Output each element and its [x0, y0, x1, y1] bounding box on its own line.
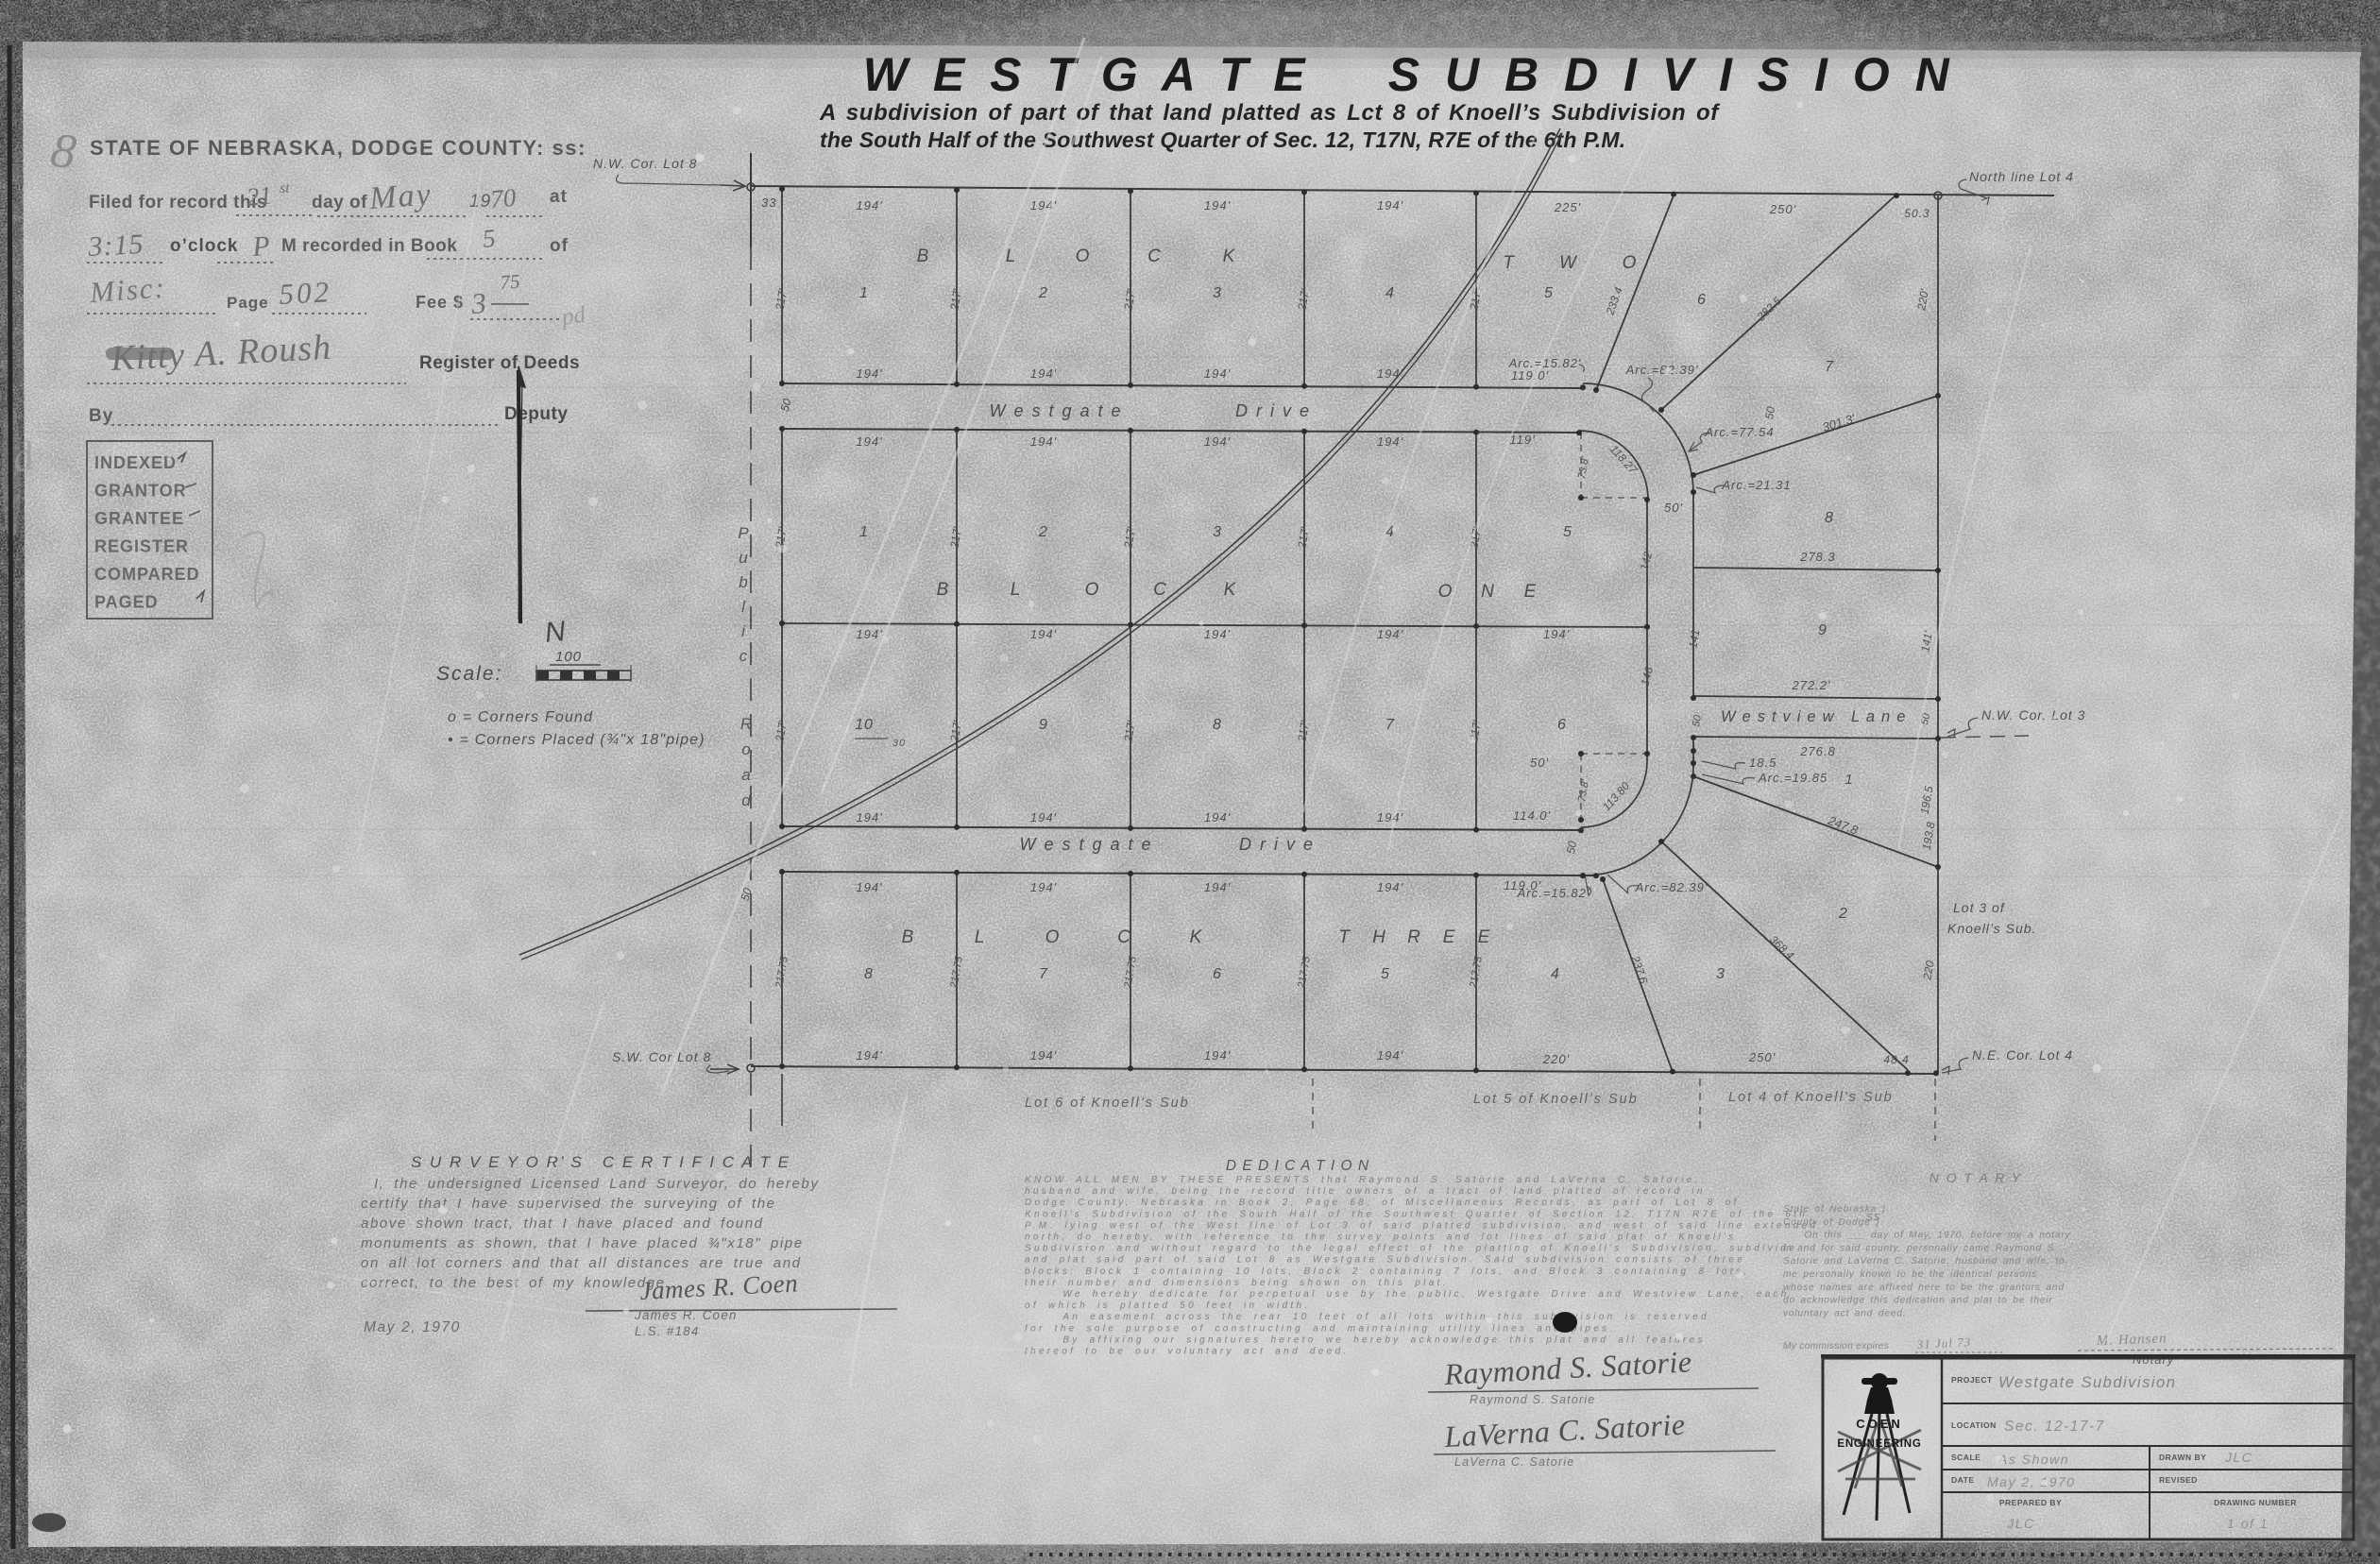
svg-text:O: O: [1045, 927, 1060, 947]
svg-text:Arc.=82.39': Arc.=82.39': [1625, 363, 1699, 377]
svg-text:E: E: [1443, 927, 1455, 947]
svg-text:a: a: [741, 766, 750, 784]
svg-text:for the sole purpose of constr: for the sole purpose of constructing and…: [1025, 1323, 1616, 1334]
svg-text:119.0': 119.0': [1511, 368, 1549, 382]
svg-text:194': 194': [1377, 434, 1403, 449]
svg-text:E: E: [1524, 582, 1537, 602]
svg-text:194': 194': [1030, 627, 1057, 641]
svg-text:Subdivision and without regard: Subdivision and without regard to the le…: [1025, 1244, 1797, 1254]
svg-text:114.0': 114.0': [1513, 808, 1551, 823]
svg-text:W E S T G A T E S U B D I V: W E S T G A T E S U B D I V I S I O N: [863, 48, 1955, 101]
svg-text:blocks: Block 1 containing 10: blocks: Block 1 containing 10 lots, Bloc…: [1025, 1266, 1749, 1277]
svg-text:50': 50': [1664, 501, 1683, 515]
svg-text:D r i v e: D r i v e: [1239, 835, 1315, 854]
svg-text:May 2, 1970: May 2, 1970: [1987, 1474, 2076, 1489]
svg-text:in and for said county, person: in and for said county, personally came …: [1783, 1243, 2058, 1253]
svg-text:8: 8: [1213, 717, 1222, 733]
svg-text:Sec. 12-17-7: Sec. 12-17-7: [2004, 1419, 2105, 1435]
svg-text:L: L: [975, 927, 985, 947]
svg-text:W: W: [1559, 253, 1578, 273]
svg-text:thereof to be our voluntary ac: thereof to be our voluntary act and deed…: [1025, 1347, 1349, 1357]
svg-text:6: 6: [1557, 717, 1567, 733]
svg-text:st: st: [280, 180, 290, 196]
svg-text:James R. Coen: James R. Coen: [634, 1308, 738, 1322]
svg-text:194': 194': [1030, 434, 1057, 449]
svg-text:O: O: [1623, 253, 1637, 273]
svg-text:N: N: [543, 616, 567, 649]
svg-text:50: 50: [1762, 405, 1777, 420]
svg-text:Arc.=77.54: Arc.=77.54: [1704, 425, 1774, 439]
svg-text:b: b: [739, 573, 747, 591]
svg-text:3: 3: [1213, 524, 1222, 540]
svg-text:monuments as shown, that I hav: monuments as shown, that I have placed ¾…: [361, 1235, 804, 1251]
svg-text:R: R: [740, 715, 752, 733]
svg-text:194': 194': [1377, 880, 1403, 894]
svg-text:N: N: [1481, 582, 1494, 602]
svg-text:3: 3: [1716, 966, 1725, 982]
svg-text:272.2': 272.2': [1791, 678, 1830, 692]
svg-text:7: 7: [1039, 966, 1048, 982]
svg-text:194': 194': [1204, 198, 1231, 212]
svg-text:50.3: 50.3: [1904, 207, 1929, 220]
svg-text:19: 19: [469, 192, 491, 212]
svg-text:Lot 3 of: Lot 3 of: [1953, 900, 2006, 915]
svg-text:D E D I C A T I O N: D E D I C A T I O N: [1226, 1158, 1369, 1174]
svg-text:DRAWN BY: DRAWN BY: [2159, 1453, 2206, 1462]
svg-text:LaVerna C. Satorie: LaVerna C. Satorie: [1454, 1455, 1574, 1469]
svg-text:Page: Page: [227, 294, 269, 312]
svg-text:A subdivision of part of that: A subdivision of part of that land platt…: [819, 100, 1720, 126]
svg-text:33: 33: [761, 195, 776, 210]
svg-text:O: O: [1085, 580, 1099, 600]
svg-text:o: o: [741, 740, 750, 758]
svg-text:PAGED: PAGED: [94, 593, 159, 612]
svg-text:Knoell's Subdivision of the So: Knoell's Subdivision of the South Half o…: [1025, 1209, 1808, 1219]
svg-text:30: 30: [892, 738, 906, 749]
svg-text:K: K: [1224, 580, 1237, 600]
svg-text:7: 7: [1825, 359, 1834, 375]
svg-text:194': 194': [856, 434, 882, 449]
svg-text:P.M. lying west of the West li: P.M. lying west of the West line of Lot …: [1025, 1220, 1818, 1231]
svg-text:JLC: JLC: [2006, 1516, 2034, 1531]
svg-text:Dodge County, Nebraska in Book: Dodge County, Nebraska in Book 2, Page 6…: [1025, 1198, 1740, 1208]
svg-text:the South Half of the Southwes: the South Half of the Southwest Quarter …: [820, 127, 1625, 152]
svg-text:of: of: [550, 236, 569, 256]
svg-text:194': 194': [1377, 198, 1403, 212]
svg-text:LOCATION: LOCATION: [1951, 1420, 1997, 1430]
svg-text:194': 194': [856, 810, 882, 824]
svg-text:31 Jul 73: 31 Jul 73: [1915, 1334, 1971, 1351]
svg-text:4: 4: [1551, 966, 1560, 982]
svg-text:P: P: [738, 524, 749, 542]
svg-text:their number and dimensions be: their number and dimensions being shown …: [1025, 1278, 1449, 1288]
svg-text:Arc.=19.85: Arc.=19.85: [1758, 771, 1827, 785]
svg-text:K: K: [1223, 246, 1236, 266]
svg-text:do acknowledge this dedication: do acknowledge this dedication and plat …: [1783, 1296, 2053, 1306]
svg-text:N.W. Cor. Lot 3: N.W. Cor. Lot 3: [1981, 707, 2085, 722]
svg-text:194': 194': [856, 627, 882, 641]
svg-text:DRAWING NUMBER: DRAWING NUMBER: [2214, 1498, 2297, 1507]
svg-text:Westgate Subdivision: Westgate Subdivision: [1998, 1374, 2176, 1391]
svg-text:Deputy: Deputy: [504, 404, 568, 424]
svg-text:S.W. Cor Lot 8: S.W. Cor Lot 8: [612, 1049, 711, 1064]
svg-text:SCALE: SCALE: [1951, 1453, 1980, 1462]
svg-text:194': 194': [1204, 810, 1231, 824]
svg-text:119': 119': [1509, 433, 1535, 447]
svg-text:70: 70: [489, 183, 518, 213]
svg-text:KNOW ALL MEN BY THESE PRESENTS: KNOW ALL MEN BY THESE PRESENTS that Raym…: [1025, 1175, 1701, 1185]
svg-text:194': 194': [1030, 810, 1057, 824]
svg-text:L: L: [1006, 246, 1016, 266]
svg-text:194': 194': [1204, 1048, 1231, 1062]
svg-text:at: at: [550, 187, 568, 207]
svg-text:My commission expires: My commission expires: [1783, 1341, 1889, 1351]
svg-text:9: 9: [1818, 622, 1827, 638]
svg-text:5: 5: [1544, 285, 1554, 301]
svg-text:On this ___ day of May, 1970,: On this ___ day of May, 1970, before me …: [1783, 1231, 2071, 1241]
svg-text:By affixing our signatures her: By affixing our signatures hereto we her…: [1025, 1334, 1706, 1345]
svg-text:Raymond S. Satorie: Raymond S. Satorie: [1470, 1393, 1595, 1406]
svg-text:me personally known to be the: me personally known to be the identical …: [1783, 1269, 2037, 1280]
svg-text:194': 194': [1377, 627, 1403, 641]
svg-text:C: C: [1147, 246, 1161, 266]
svg-text:husband and wife, being the re: husband and wife, being the record title…: [1025, 1186, 1706, 1197]
svg-text:194': 194': [856, 880, 882, 894]
svg-text:2: 2: [1038, 524, 1048, 540]
svg-text:M recorded in Book: M recorded in Book: [281, 236, 457, 256]
svg-text:north, do hereby, with referen: north, do hereby, with reference to the …: [1025, 1232, 1736, 1243]
svg-text:ENGINEERING: ENGINEERING: [1837, 1438, 1921, 1450]
svg-text:C: C: [1153, 580, 1166, 600]
svg-text:above shown tract, that I have: above shown tract, that I have placed an…: [361, 1215, 764, 1232]
svg-text:Lot 6 of Knoell’s Sub: Lot 6 of Knoell’s Sub: [1025, 1096, 1190, 1111]
svg-text:50: 50: [1564, 840, 1579, 855]
svg-text:Satorie and LaVerna C. Satorie: Satorie and LaVerna C. Satorie, husband …: [1783, 1256, 2065, 1266]
svg-text:SS: SS: [1866, 1213, 1880, 1223]
svg-text:d: d: [741, 791, 751, 809]
svg-text:INDEXED: INDEXED: [94, 453, 177, 472]
svg-text:119.0': 119.0': [1504, 878, 1541, 892]
svg-text:o = Corners Found: o = Corners Found: [448, 709, 593, 725]
svg-text:B: B: [937, 580, 949, 600]
svg-text:6: 6: [1697, 292, 1707, 308]
svg-text:194': 194': [856, 366, 882, 381]
svg-text:GRANTEE: GRANTEE: [94, 509, 184, 528]
svg-text:pd: pd: [558, 302, 587, 331]
svg-text:REGISTER: REGISTER: [94, 537, 189, 556]
svg-text:75: 75: [500, 270, 521, 294]
svg-text:day of: day of: [312, 193, 367, 212]
svg-text:As Shown: As Shown: [1997, 1452, 2069, 1467]
svg-text:on all lot corners and that al: on all lot corners and that all distance…: [361, 1255, 802, 1271]
svg-text:S U R V E Y O R’ S C E R T I: S U R V E Y O R’ S C E R T I F I C A T E: [411, 1153, 790, 1171]
svg-text:H: H: [1372, 927, 1385, 947]
svg-text:Knoell’s Sub.: Knoell’s Sub.: [1947, 921, 2036, 936]
svg-text:502: 502: [279, 275, 332, 311]
svg-text:of which is platted 50 feet in: of which is platted 50 feet in width.: [1025, 1300, 1310, 1311]
svg-text:PREPARED BY: PREPARED BY: [1999, 1498, 2062, 1507]
svg-text:278.3: 278.3: [1799, 550, 1836, 564]
svg-text:4: 4: [1385, 285, 1395, 301]
svg-text:B: B: [902, 927, 914, 947]
svg-text:B: B: [917, 246, 929, 266]
svg-text:T: T: [1503, 253, 1515, 273]
svg-text:1: 1: [859, 285, 869, 301]
svg-text:P: P: [250, 230, 271, 263]
svg-text:JLC: JLC: [2224, 1450, 2252, 1465]
svg-text:May: May: [367, 177, 433, 216]
svg-text:8: 8: [864, 966, 874, 982]
svg-text:N O T A R Y: N O T A R Y: [1929, 1170, 2023, 1185]
svg-text:194': 194': [1204, 366, 1231, 381]
svg-text:21: 21: [245, 180, 273, 212]
svg-text:194': 194': [1204, 880, 1231, 894]
svg-text:194': 194': [1377, 1048, 1403, 1062]
svg-text:o’clock: o’clock: [170, 236, 238, 256]
svg-text:COEN: COEN: [1856, 1417, 1903, 1431]
svg-text:COMPARED: COMPARED: [94, 565, 200, 584]
svg-text:1: 1: [1844, 772, 1853, 788]
svg-text:N.W. Cor. Lot 8: N.W. Cor. Lot 8: [593, 156, 697, 171]
svg-text:PROJECT: PROJECT: [1951, 1375, 1993, 1385]
svg-text:18.5: 18.5: [1749, 756, 1776, 770]
svg-text:D r i v e: D r i v e: [1235, 401, 1311, 420]
svg-text:Misc:: Misc:: [88, 270, 167, 309]
svg-text:O: O: [1438, 582, 1453, 602]
svg-text:STATE OF NEBRASKA, DODGE COUNT: STATE OF NEBRASKA, DODGE COUNTY: ss:: [90, 136, 586, 160]
svg-text:We hereby dedicate for perpetu: We hereby dedicate for perpetual use by …: [1025, 1289, 1790, 1300]
svg-text:R: R: [1407, 927, 1420, 947]
svg-text:3: 3: [469, 286, 487, 320]
svg-text:voluntary act and deed.: voluntary act and deed.: [1783, 1308, 1906, 1318]
svg-text:1: 1: [859, 524, 869, 540]
svg-text:8: 8: [1825, 510, 1834, 526]
svg-text:10: 10: [855, 717, 874, 733]
svg-text:W e s t g a t e: W e s t g a t e: [1019, 835, 1152, 854]
svg-text:L: L: [1011, 580, 1021, 600]
svg-text:• = Corners Placed (¾"x 18"pip: • = Corners Placed (¾"x 18"pipe): [448, 732, 705, 748]
svg-text:194': 194': [856, 1048, 882, 1062]
svg-text:3: 3: [1213, 285, 1222, 301]
svg-text:194': 194': [1377, 810, 1403, 824]
svg-text:By: By: [89, 406, 113, 426]
svg-text:County of Dodge ): County of Dodge ): [1783, 1217, 1879, 1228]
svg-text:N.E. Cor. Lot 4: N.E. Cor. Lot 4: [1972, 1047, 2073, 1062]
svg-text:225': 225': [1554, 200, 1581, 214]
svg-text:Filed for record this: Filed for record this: [89, 193, 267, 212]
svg-text:certify that I have supervised: certify that I have supervised the surve…: [361, 1196, 776, 1212]
svg-text:and plat said part of said Lot: and plat said part of said Lot 8 as West…: [1025, 1255, 1745, 1266]
svg-text:194': 194': [856, 198, 882, 212]
svg-text:2: 2: [1038, 285, 1048, 301]
svg-text:5: 5: [1381, 966, 1390, 982]
svg-text:7: 7: [1385, 717, 1395, 733]
svg-text:220': 220': [1542, 1052, 1570, 1066]
svg-text:May 2, 1970: May 2, 1970: [364, 1319, 461, 1335]
svg-text:u: u: [739, 549, 748, 567]
svg-text:6: 6: [1213, 966, 1222, 982]
svg-text:K: K: [1190, 927, 1203, 947]
svg-text:North line Lot 4: North line Lot 4: [1969, 169, 2074, 184]
svg-text:GRANTOR: GRANTOR: [94, 482, 187, 501]
svg-text:3:15: 3:15: [87, 229, 145, 263]
svg-text:whose names are affixed here t: whose names are affixed here to be the g…: [1783, 1283, 2065, 1293]
svg-text:DATE: DATE: [1951, 1475, 1975, 1485]
svg-text:2: 2: [1838, 906, 1848, 922]
svg-text:An easement across the rear 10: An easement across the rear 10 feet of a…: [1025, 1312, 1709, 1322]
svg-text:250': 250': [1748, 1050, 1776, 1064]
svg-text:O: O: [1076, 246, 1090, 266]
svg-text:Register of Deeds: Register of Deeds: [419, 353, 580, 373]
svg-text:250': 250': [1769, 202, 1796, 216]
svg-text:C: C: [1117, 927, 1130, 947]
svg-text:I, the undersigned Licensed La: I, the undersigned Licensed Land Surveyo…: [374, 1176, 819, 1192]
svg-text:194': 194': [1204, 434, 1231, 449]
svg-text:194': 194': [1030, 880, 1057, 894]
svg-text:50': 50': [1530, 756, 1549, 770]
svg-text:W e s t g a t e: W e s t g a t e: [989, 401, 1122, 420]
svg-text:W e s t v i e w L a n e: W e s t v i e w L a n e: [1721, 708, 1907, 725]
svg-text:Scale:: Scale:: [436, 663, 502, 685]
svg-text:276.8: 276.8: [1799, 744, 1836, 758]
svg-text:194': 194': [1543, 627, 1570, 641]
svg-text:9: 9: [1039, 717, 1048, 733]
svg-text:T: T: [1338, 927, 1351, 947]
svg-text:5: 5: [1563, 524, 1572, 540]
svg-text:100: 100: [555, 649, 582, 665]
svg-text:Lot 5 of Knoell’s Sub: Lot 5 of Knoell’s Sub: [1473, 1092, 1639, 1107]
svg-text:194': 194': [1030, 366, 1057, 381]
svg-text:Lot 4 of Knoell’s Sub: Lot 4 of Knoell’s Sub: [1728, 1090, 1894, 1105]
svg-text:Arc.=21.31: Arc.=21.31: [1721, 478, 1791, 492]
svg-text:1 of 1: 1 of 1: [2227, 1516, 2269, 1531]
svg-text:Arc.=82.39': Arc.=82.39': [1635, 880, 1708, 894]
svg-text:194': 194': [1204, 627, 1231, 641]
svg-text:c: c: [739, 647, 748, 665]
svg-text:194': 194': [1030, 1048, 1057, 1062]
svg-text:REVISED: REVISED: [2159, 1475, 2198, 1485]
svg-text:E: E: [1478, 927, 1490, 947]
